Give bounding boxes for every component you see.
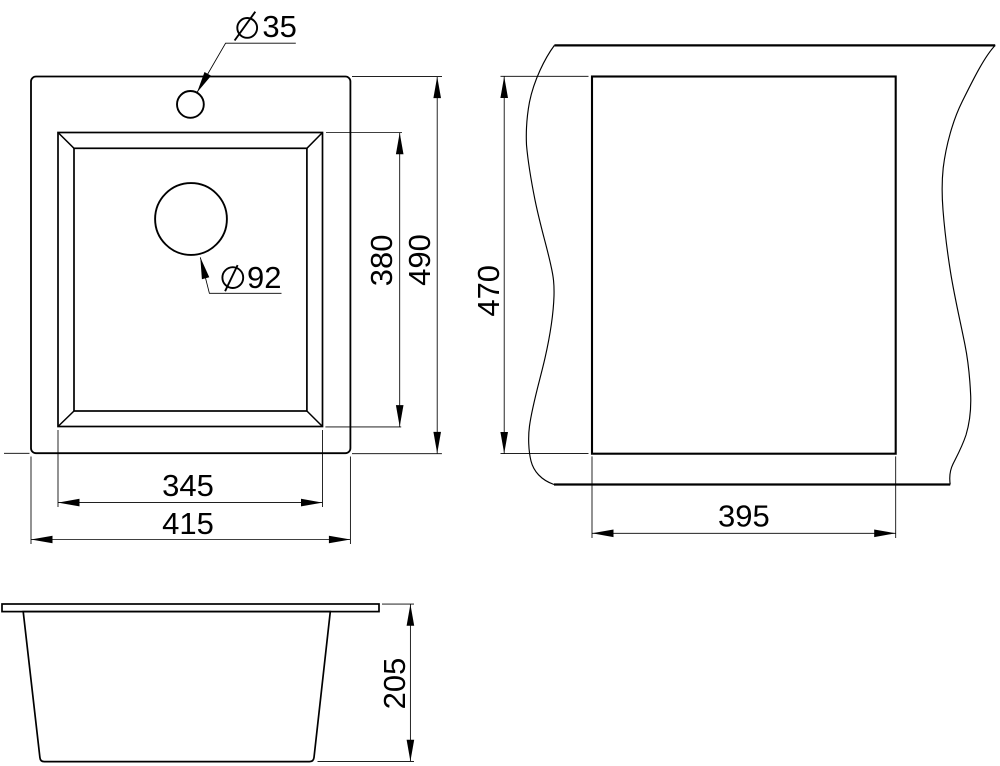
svg-text:92: 92 — [247, 260, 281, 295]
svg-text:415: 415 — [162, 506, 214, 541]
svg-text:490: 490 — [402, 234, 437, 286]
svg-text:345: 345 — [162, 468, 214, 503]
svg-text:35: 35 — [262, 9, 296, 44]
svg-text:395: 395 — [718, 499, 770, 534]
svg-text:380: 380 — [364, 235, 399, 287]
svg-text:205: 205 — [377, 658, 412, 710]
svg-text:470: 470 — [471, 265, 506, 317]
